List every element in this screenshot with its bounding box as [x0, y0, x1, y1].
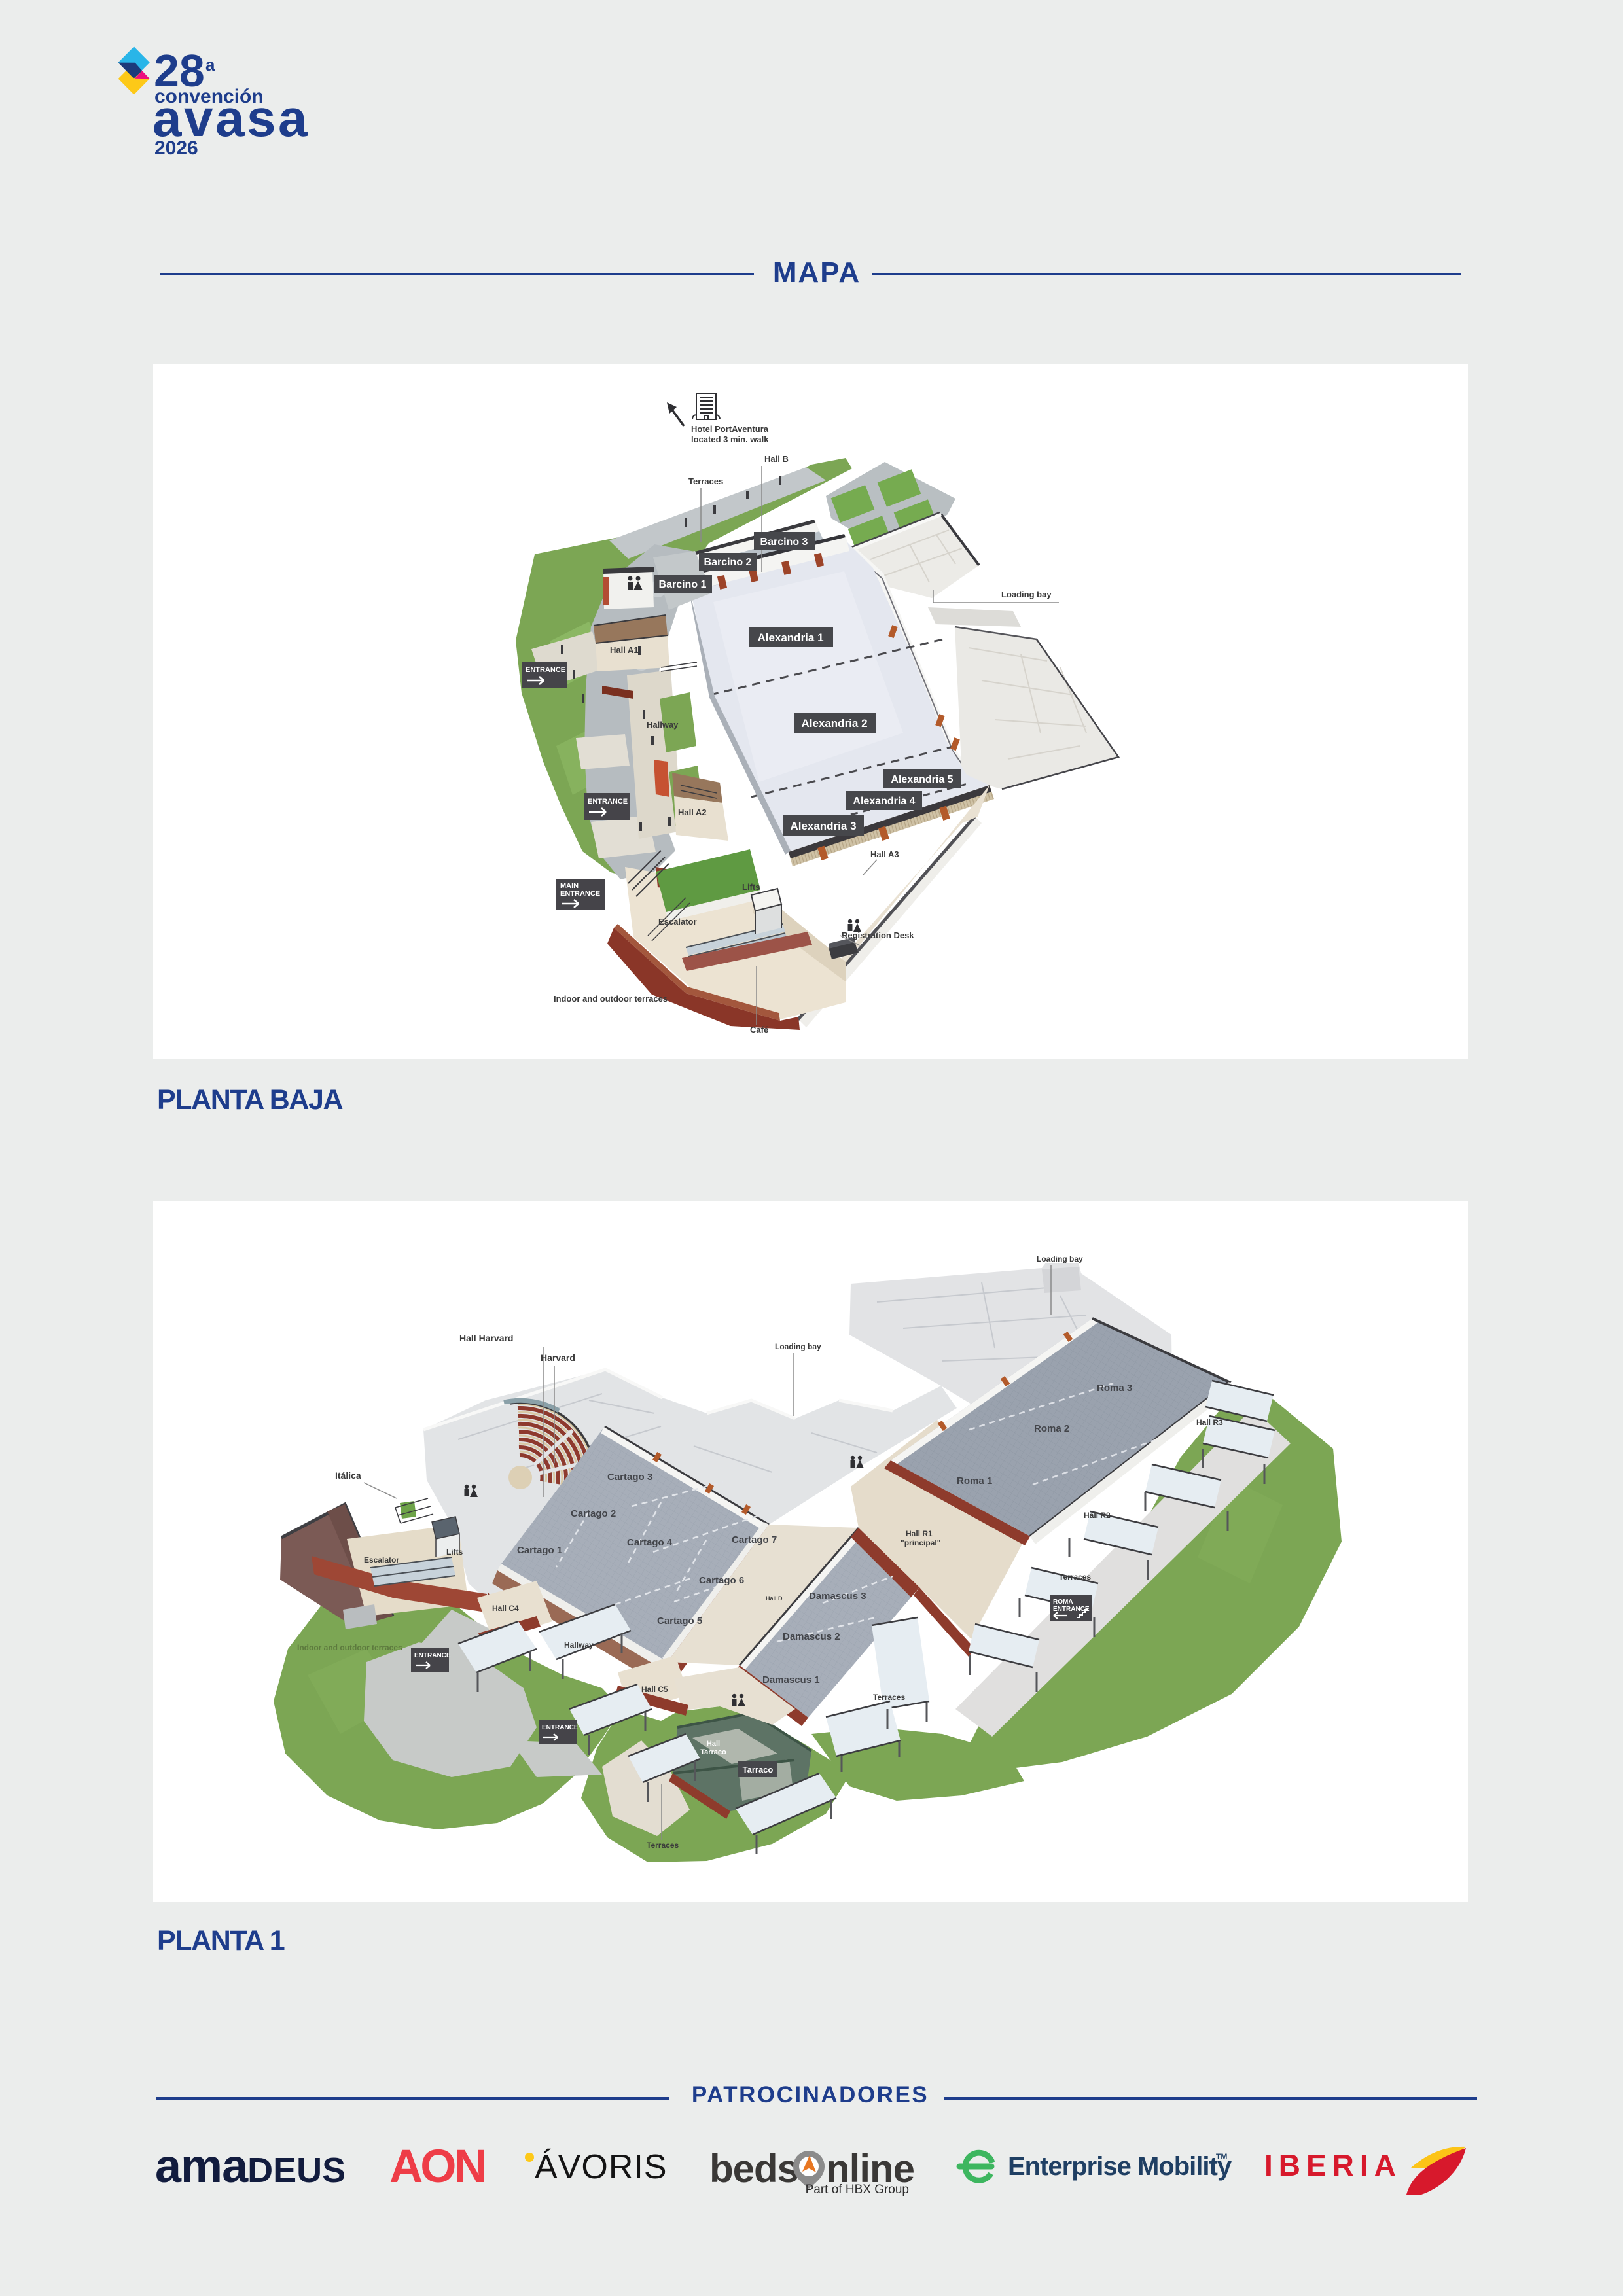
svg-text:Escalator: Escalator [658, 917, 697, 927]
svg-text:Cartago 6: Cartago 6 [699, 1575, 744, 1586]
svg-text:Tarraco: Tarraco [743, 1765, 774, 1775]
svg-text:Harvard: Harvard [541, 1352, 575, 1363]
svg-text:Barcino 1: Barcino 1 [659, 579, 707, 590]
svg-text:Terraces: Terraces [647, 1841, 679, 1850]
svg-text:Hallway: Hallway [647, 720, 679, 730]
svg-text:Loading bay: Loading bay [775, 1342, 821, 1351]
svg-text:ENTRANCE: ENTRANCE [526, 666, 565, 674]
svg-text:Loading bay: Loading bay [1001, 590, 1052, 599]
svg-text:a: a [205, 55, 215, 75]
svg-text:Hall D: Hall D [766, 1595, 783, 1602]
svg-text:Enterprise Mobility: Enterprise Mobility [1008, 2152, 1232, 2181]
svg-text:Damascus 2: Damascus 2 [783, 1631, 840, 1642]
svg-text:ROMA: ROMA [1053, 1598, 1073, 1606]
svg-text:Hall Harvard: Hall Harvard [459, 1333, 513, 1343]
svg-text:"principal": "principal" [901, 1538, 940, 1547]
svg-text:Hotel PortAventura: Hotel PortAventura [691, 424, 769, 434]
svg-text:Indoor and outdoor terraces: Indoor and outdoor terraces [297, 1643, 402, 1652]
svg-text:Cartago 1: Cartago 1 [517, 1545, 562, 1556]
svg-text:located 3 min. walk: located 3 min. walk [691, 434, 769, 444]
svg-text:Terraces: Terraces [873, 1693, 905, 1702]
svg-text:Cartago 7: Cartago 7 [732, 1534, 777, 1545]
svg-text:Loading bay: Loading bay [1037, 1254, 1083, 1263]
svg-text:Itálica: Itálica [335, 1470, 361, 1481]
svg-text:Hall A1: Hall A1 [610, 645, 639, 655]
svg-text:Hall B: Hall B [764, 454, 789, 464]
svg-text:Hall: Hall [707, 1740, 720, 1748]
svg-text:Hall R1: Hall R1 [906, 1529, 933, 1538]
svg-text:ENTRANCE: ENTRANCE [414, 1652, 451, 1659]
svg-text:Barcino 3: Barcino 3 [760, 537, 808, 548]
svg-text:Registration Desk: Registration Desk [842, 930, 914, 940]
svg-text:Hall A2: Hall A2 [678, 807, 707, 817]
svg-text:Alexandria 4: Alexandria 4 [853, 796, 915, 807]
svg-text:Roma 3: Roma 3 [1097, 1383, 1132, 1394]
svg-text:Hallway: Hallway [564, 1640, 594, 1650]
svg-text:Roma 2: Roma 2 [1034, 1423, 1069, 1434]
svg-text:TM: TM [1216, 2152, 1227, 2161]
svg-text:Cartago 5: Cartago 5 [657, 1616, 702, 1627]
svg-text:beds: beds [709, 2147, 798, 2191]
svg-text:Cartago 2: Cartago 2 [571, 1508, 616, 1519]
svg-text:Terraces: Terraces [688, 476, 723, 486]
svg-text:IBERIA: IBERIA [1264, 2148, 1402, 2182]
svg-text:ENTRANCE: ENTRANCE [560, 890, 600, 898]
svg-text:Hall C5: Hall C5 [641, 1685, 668, 1694]
svg-text:Alexandria 1: Alexandria 1 [757, 631, 823, 644]
svg-text:Lifts: Lifts [446, 1547, 463, 1557]
svg-text:ENTRANCE: ENTRANCE [542, 1724, 579, 1731]
svg-text:Hall R2: Hall R2 [1084, 1511, 1111, 1520]
svg-text:Terraces: Terraces [1059, 1572, 1091, 1581]
svg-text:Part of HBX Group: Part of HBX Group [806, 2183, 909, 2197]
svg-text:Lifts: Lifts [742, 882, 760, 892]
svg-text:Hall C4: Hall C4 [492, 1604, 519, 1613]
svg-text:Tarraco: Tarraco [700, 1748, 726, 1756]
svg-text:Barcino 2: Barcino 2 [704, 557, 752, 568]
svg-text:Hall A3: Hall A3 [870, 849, 899, 859]
svg-text:Cartago 4: Cartago 4 [627, 1537, 673, 1548]
svg-text:Damascus 1: Damascus 1 [762, 1674, 820, 1686]
svg-text:Escalator: Escalator [364, 1555, 399, 1564]
svg-text:Indoor and outdoor terraces: Indoor and outdoor terraces [554, 994, 668, 1004]
svg-text:ÁVORIS: ÁVORIS [535, 2148, 668, 2186]
svg-text:2026: 2026 [154, 137, 198, 159]
svg-text:Damascus 3: Damascus 3 [809, 1591, 866, 1602]
svg-text:AON: AON [389, 2141, 485, 2193]
svg-text:MAIN: MAIN [560, 882, 579, 890]
svg-text:amaDEUS: amaDEUS [155, 2140, 346, 2193]
svg-text:Cartago 3: Cartago 3 [607, 1472, 652, 1483]
svg-text:Alexandria 5: Alexandria 5 [891, 774, 953, 785]
svg-text:Café: Café [750, 1025, 768, 1034]
svg-text:Alexandria 3: Alexandria 3 [790, 820, 856, 832]
svg-text:Roma 1: Roma 1 [957, 1475, 992, 1487]
svg-text:Alexandria 2: Alexandria 2 [801, 717, 867, 730]
svg-text:Hall R3: Hall R3 [1196, 1418, 1223, 1427]
svg-text:ENTRANCE: ENTRANCE [588, 798, 628, 805]
